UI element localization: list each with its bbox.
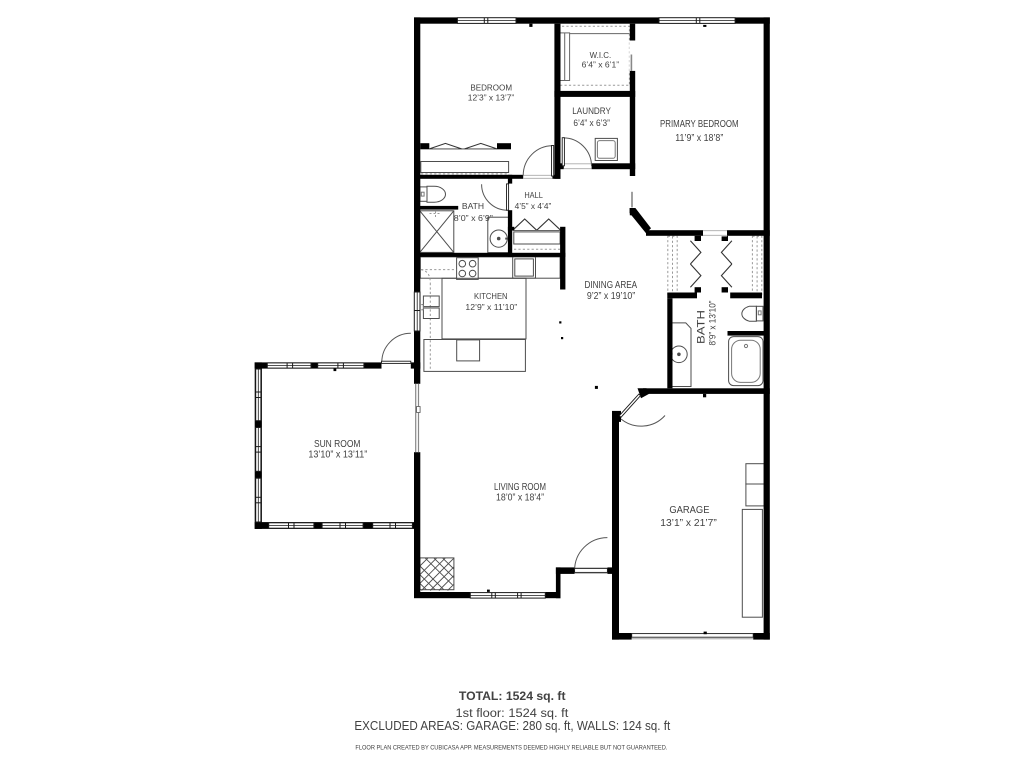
svg-text:LIVING ROOM: LIVING ROOM [494,482,546,493]
svg-text:18’0” x 18’4”: 18’0” x 18’4” [496,493,545,504]
svg-text:BATH: BATH [462,201,484,211]
svg-text:13’1” x 21’7”: 13’1” x 21’7” [660,518,717,529]
svg-text:PRIMARY BEDROOM: PRIMARY BEDROOM [660,119,739,130]
svg-text:GARAGE: GARAGE [669,505,709,516]
svg-text:BEDROOM: BEDROOM [470,82,512,92]
svg-text:9’2” x 19’10”: 9’2” x 19’10” [587,291,636,302]
svg-text:SUN ROOM: SUN ROOM [314,439,361,450]
svg-text:EXCLUDED AREAS: GARAGE: 280 sq: EXCLUDED AREAS: GARAGE: 280 sq. ft, WALL… [354,719,670,733]
svg-text:8’0” x 6’9”: 8’0” x 6’9” [454,213,493,223]
svg-text:11’9” x 18’8”: 11’9” x 18’8” [675,133,724,144]
svg-text:1st floor: 1524 sq. ft: 1st floor: 1524 sq. ft [456,706,569,720]
svg-text:4’5” x 4’4”: 4’5” x 4’4” [515,201,552,211]
svg-text:6’4” x 6’3”: 6’4” x 6’3” [573,118,610,128]
svg-text:12’3” x 13’7”: 12’3” x 13’7” [468,93,515,103]
svg-text:6’4” x 6’1”: 6’4” x 6’1” [582,60,620,70]
svg-text:FLOOR PLAN CREATED BY CUBICASA: FLOOR PLAN CREATED BY CUBICASA APP. MEAS… [355,745,667,752]
svg-text:HALL: HALL [524,190,543,200]
svg-text:TOTAL: 1524 sq. ft: TOTAL: 1524 sq. ft [459,689,566,703]
svg-text:KITCHEN: KITCHEN [474,291,508,301]
svg-text:13’10” x 13’11”: 13’10” x 13’11” [308,450,367,461]
svg-text:LAUNDRY: LAUNDRY [572,106,611,116]
svg-text:12’9” x 11’10”: 12’9” x 11’10” [465,302,517,312]
svg-text:DINING AREA: DINING AREA [584,280,637,291]
svg-text:BATH: BATH [696,310,708,344]
svg-text:8’9” x 13’10”: 8’9” x 13’10” [708,301,719,346]
